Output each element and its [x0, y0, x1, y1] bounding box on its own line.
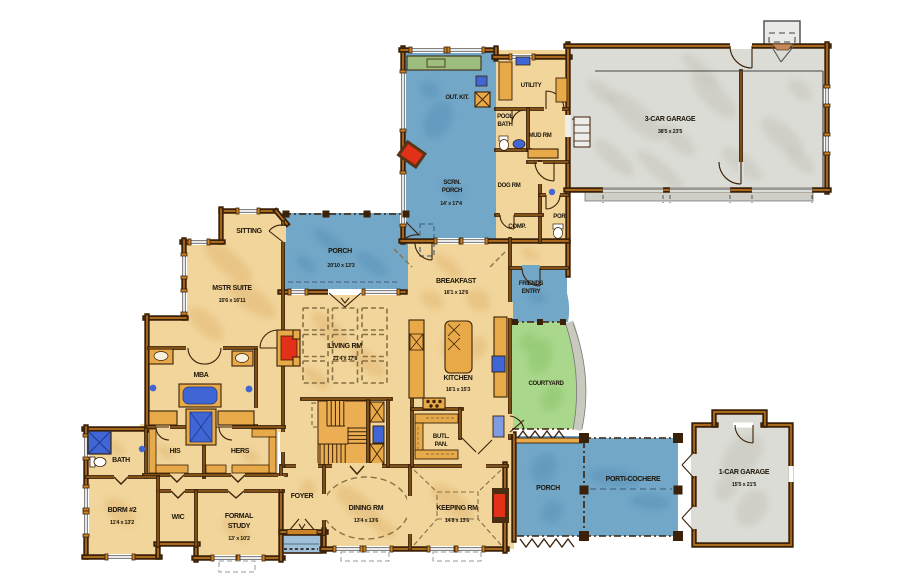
svg-text:11'4 x 13'2: 11'4 x 13'2	[110, 520, 134, 526]
svg-text:OUT. KIT.: OUT. KIT.	[445, 95, 469, 101]
svg-text:LIVING RM: LIVING RM	[328, 343, 362, 350]
svg-text:BDRM #2: BDRM #2	[108, 507, 137, 514]
svg-text:14' x 17'4: 14' x 17'4	[440, 201, 462, 207]
svg-text:WIC: WIC	[172, 514, 185, 521]
svg-text:38'5 x 23'5: 38'5 x 23'5	[658, 129, 683, 135]
svg-text:FOYER: FOYER	[291, 493, 314, 500]
svg-text:20'10 x 13'3: 20'10 x 13'3	[327, 263, 354, 269]
svg-text:SITTING: SITTING	[236, 228, 262, 235]
svg-text:KEEPING RM: KEEPING RM	[436, 505, 478, 512]
svg-text:HIS: HIS	[170, 448, 181, 455]
svg-text:STUDY: STUDY	[228, 523, 251, 530]
svg-text:3-CAR GARAGE: 3-CAR GARAGE	[645, 116, 696, 123]
svg-text:1-CAR GARAGE: 1-CAR GARAGE	[719, 469, 770, 476]
svg-text:COURTYARD: COURTYARD	[528, 381, 564, 387]
svg-text:16'1 x 15'3: 16'1 x 15'3	[446, 387, 471, 393]
svg-text:POOL: POOL	[497, 114, 513, 120]
svg-text:21'4 x 17'8: 21'4 x 17'8	[333, 356, 358, 362]
svg-text:BATH: BATH	[112, 457, 130, 464]
svg-text:15'6 x 16'11: 15'6 x 16'11	[219, 298, 246, 304]
svg-text:MBA: MBA	[193, 372, 208, 379]
svg-text:DINING RM: DINING RM	[349, 505, 384, 512]
svg-text:HERS: HERS	[231, 448, 250, 455]
svg-text:KITCHEN: KITCHEN	[443, 375, 472, 382]
svg-text:PORTI-COCHERE: PORTI-COCHERE	[606, 476, 661, 483]
svg-text:PORCH: PORCH	[328, 248, 352, 255]
svg-text:13' x 10'2: 13' x 10'2	[228, 536, 250, 542]
svg-text:13'4 x 13'6: 13'4 x 13'6	[354, 518, 379, 524]
svg-text:MSTR SUITE: MSTR SUITE	[212, 285, 252, 292]
svg-text:COMP.: COMP.	[508, 224, 526, 230]
svg-text:PORCH: PORCH	[442, 188, 462, 194]
svg-text:MUD RM: MUD RM	[529, 133, 552, 139]
svg-text:BREAKFAST: BREAKFAST	[436, 278, 477, 285]
svg-text:BATH: BATH	[497, 122, 512, 128]
svg-text:16'1 x 12'6: 16'1 x 12'6	[444, 290, 469, 296]
svg-text:14'8 x 13'6: 14'8 x 13'6	[445, 518, 470, 524]
svg-text:SCRN.: SCRN.	[443, 180, 461, 186]
svg-text:FRIENDS: FRIENDS	[519, 281, 544, 287]
svg-text:DOG RM: DOG RM	[498, 183, 521, 189]
svg-text:15'5 x 21'5: 15'5 x 21'5	[732, 482, 757, 488]
svg-text:BUTL.: BUTL.	[433, 434, 450, 440]
svg-text:PORCH: PORCH	[536, 485, 560, 492]
svg-text:ENTRY: ENTRY	[522, 289, 541, 295]
svg-text:FORMAL: FORMAL	[225, 513, 254, 520]
svg-text:UTILITY: UTILITY	[521, 83, 542, 89]
svg-text:PAN.: PAN.	[435, 442, 448, 448]
svg-text:POR.: POR.	[553, 214, 567, 220]
